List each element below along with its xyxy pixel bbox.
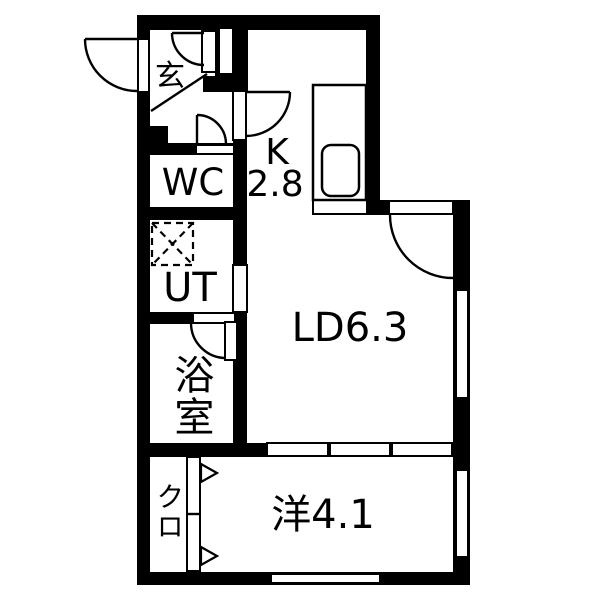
kitchen-counter-group — [313, 85, 366, 200]
shoe-cabinet — [219, 28, 233, 74]
closet-arrow-top-icon — [201, 464, 217, 482]
wall-left — [137, 15, 150, 585]
wall-genkan-bar — [203, 76, 248, 92]
room-label-bedroom: 洋4.1 — [253, 493, 393, 537]
wall-bath-closet — [137, 443, 267, 457]
genkan-door-leaf — [202, 31, 216, 72]
room-label-bath: 浴室 — [166, 350, 214, 442]
genkan-step-block — [150, 126, 168, 143]
wall-top — [137, 15, 380, 30]
kitchen-door-leaf — [233, 91, 246, 140]
floor-plan-canvas: 玄 WC UT 浴室 K 2.8 LD6.3 洋4.1 クロ — [0, 0, 600, 600]
sliding-panel-1 — [267, 443, 328, 456]
window-right-upper — [456, 290, 468, 398]
closet-arrow-bottom-icon — [201, 547, 217, 565]
kitchen-door-arc — [246, 92, 290, 136]
sliding-panel-2 — [330, 443, 390, 456]
counter-pass-through — [313, 200, 367, 214]
ld-door-arc — [390, 215, 453, 278]
room-label-closet: クロ — [151, 481, 185, 543]
window-right-lower — [456, 470, 468, 557]
room-area-kitchen: 2.8 — [242, 167, 308, 203]
entrance-door-leaf — [138, 39, 149, 92]
room-label-ut: UT — [155, 267, 225, 309]
kitchen-sink — [322, 145, 359, 196]
entrance-door-arc — [85, 39, 137, 91]
room-label-wc: WC — [158, 163, 228, 203]
room-label-living: LD6.3 — [280, 307, 420, 349]
wall-kitchen-east — [366, 15, 380, 215]
washing-machine-pan-center — [171, 242, 175, 246]
bath-door-leaf — [225, 322, 237, 360]
room-label-genkan: 玄 — [150, 59, 190, 95]
ut-sliding-opening — [233, 265, 247, 312]
wc-doorway — [196, 145, 234, 154]
ld-doorway — [389, 201, 453, 214]
wall-wc-ut — [137, 207, 243, 220]
sliding-panel-3 — [392, 443, 452, 456]
closet-door-arrows — [201, 464, 217, 565]
wall-kitchen-bottom-stub — [366, 200, 390, 215]
wc-door-arc — [197, 115, 226, 144]
window-bottom — [271, 574, 380, 583]
